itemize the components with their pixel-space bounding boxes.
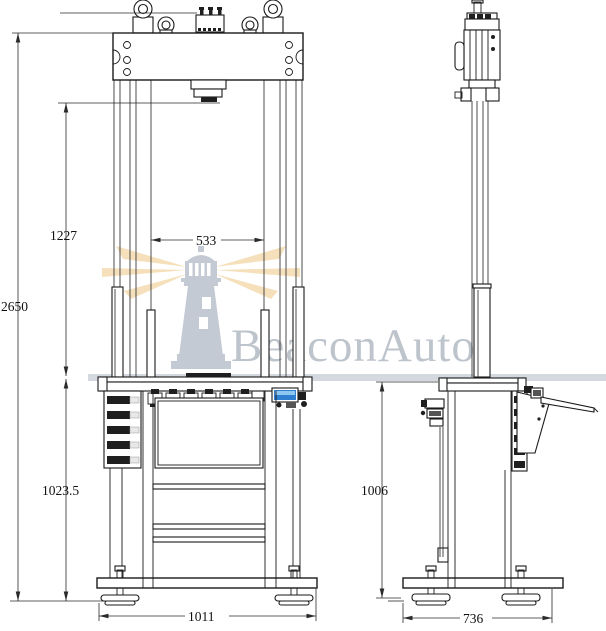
top-fitting: [196, 7, 224, 32]
front-base: [97, 566, 317, 605]
dim-between-columns: 533: [151, 233, 264, 248]
svg-text:1227: 1227: [50, 228, 77, 243]
technical-drawing-page: BeaconAuto: [0, 0, 606, 631]
svg-text:1006: 1006: [361, 483, 388, 498]
watermark-lighthouse-logo: BeaconAuto: [88, 246, 606, 381]
press-ram: [191, 80, 226, 102]
press-machine-drawing: BeaconAuto: [0, 0, 606, 631]
svg-text:533: 533: [196, 233, 217, 248]
dim-front-base-width: 1011: [99, 589, 316, 624]
side-column-sleeve: [473, 284, 491, 377]
dim-table-height: 1023.5: [42, 379, 79, 601]
svg-text:1011: 1011: [188, 609, 215, 624]
svg-text:2650: 2650: [1, 299, 28, 314]
drawer-stack: [104, 391, 141, 468]
side-head: [455, 0, 500, 101]
svg-text:736: 736: [463, 611, 484, 626]
side-leveling-feet: [412, 588, 540, 605]
side-base: [403, 566, 563, 605]
dim-overall-height: 2650: [1, 13, 197, 601]
top-crossbeam: [113, 0, 303, 80]
side-table: [439, 378, 526, 391]
svg-text:1023.5: 1023.5: [42, 483, 79, 498]
side-view: [403, 0, 598, 605]
leveling-feet: [101, 588, 313, 605]
side-cabinet: [438, 391, 550, 578]
side-valve-assembly: [421, 399, 444, 557]
